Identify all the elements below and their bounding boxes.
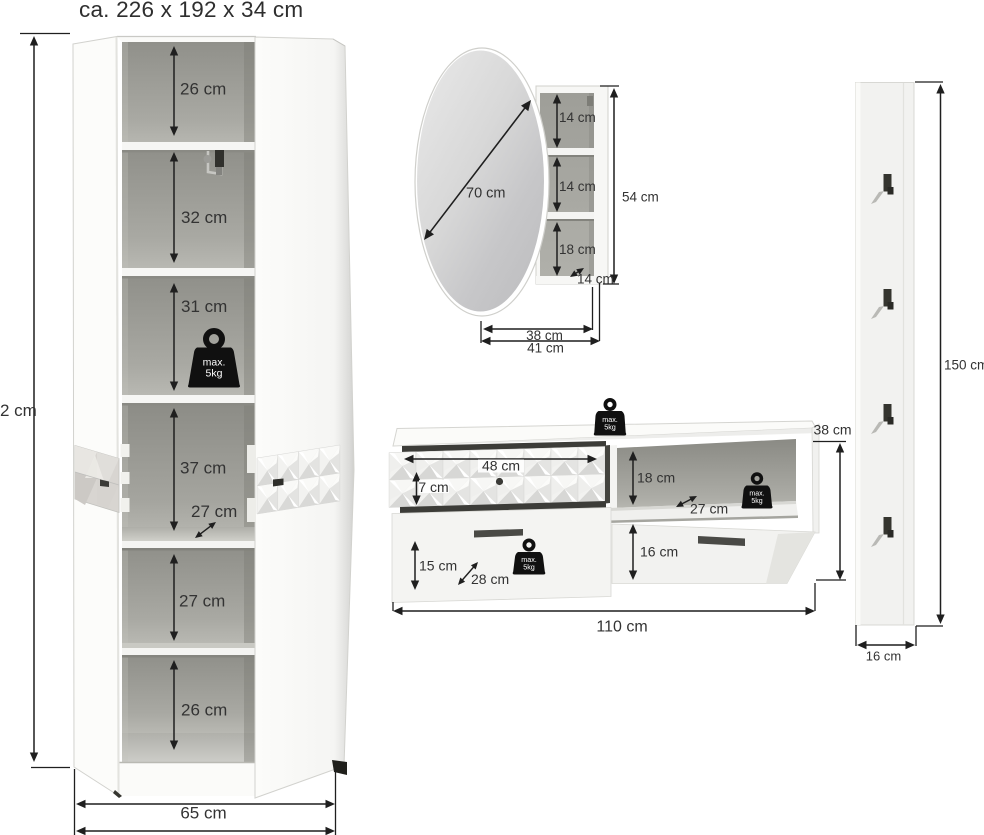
svg-text:14 cm: 14 cm	[559, 179, 596, 194]
svg-text:5kg: 5kg	[523, 563, 535, 572]
svg-text:5kg: 5kg	[206, 368, 223, 380]
svg-text:18 cm: 18 cm	[559, 242, 596, 257]
svg-text:16 cm: 16 cm	[866, 649, 901, 664]
svg-text:ca. 226 x 192 x 34 cm: ca. 226 x 192 x 34 cm	[79, 0, 303, 22]
svg-text:26 cm: 26 cm	[181, 701, 227, 720]
svg-text:14 cm: 14 cm	[577, 272, 614, 287]
svg-text:54 cm: 54 cm	[622, 190, 659, 205]
svg-text:27 cm: 27 cm	[690, 501, 728, 517]
svg-text:15 cm: 15 cm	[419, 558, 457, 574]
svg-text:110 cm: 110 cm	[596, 619, 647, 636]
svg-text:32 cm: 32 cm	[181, 208, 227, 227]
svg-text:31 cm: 31 cm	[181, 297, 227, 316]
svg-text:5kg: 5kg	[604, 423, 616, 432]
svg-text:5kg: 5kg	[751, 498, 762, 505]
svg-text:150 cm: 150 cm	[944, 358, 984, 373]
svg-text:70 cm: 70 cm	[466, 186, 506, 202]
svg-text:28 cm: 28 cm	[471, 571, 509, 587]
svg-text:18 cm: 18 cm	[637, 470, 675, 486]
svg-text:48 cm: 48 cm	[482, 458, 520, 474]
svg-text:27 cm: 27 cm	[191, 502, 237, 521]
svg-text:37 cm: 37 cm	[180, 459, 226, 478]
svg-text:26 cm: 26 cm	[180, 80, 226, 99]
svg-text:7 cm: 7 cm	[418, 479, 448, 495]
svg-text:2 cm: 2 cm	[0, 401, 37, 420]
svg-text:16 cm: 16 cm	[640, 544, 678, 560]
svg-text:65 cm: 65 cm	[180, 804, 226, 823]
svg-text:27 cm: 27 cm	[179, 592, 225, 611]
svg-text:14 cm: 14 cm	[559, 110, 596, 125]
svg-text:41 cm: 41 cm	[527, 341, 564, 356]
svg-text:max.: max.	[749, 491, 764, 498]
svg-text:38 cm: 38 cm	[813, 422, 851, 438]
